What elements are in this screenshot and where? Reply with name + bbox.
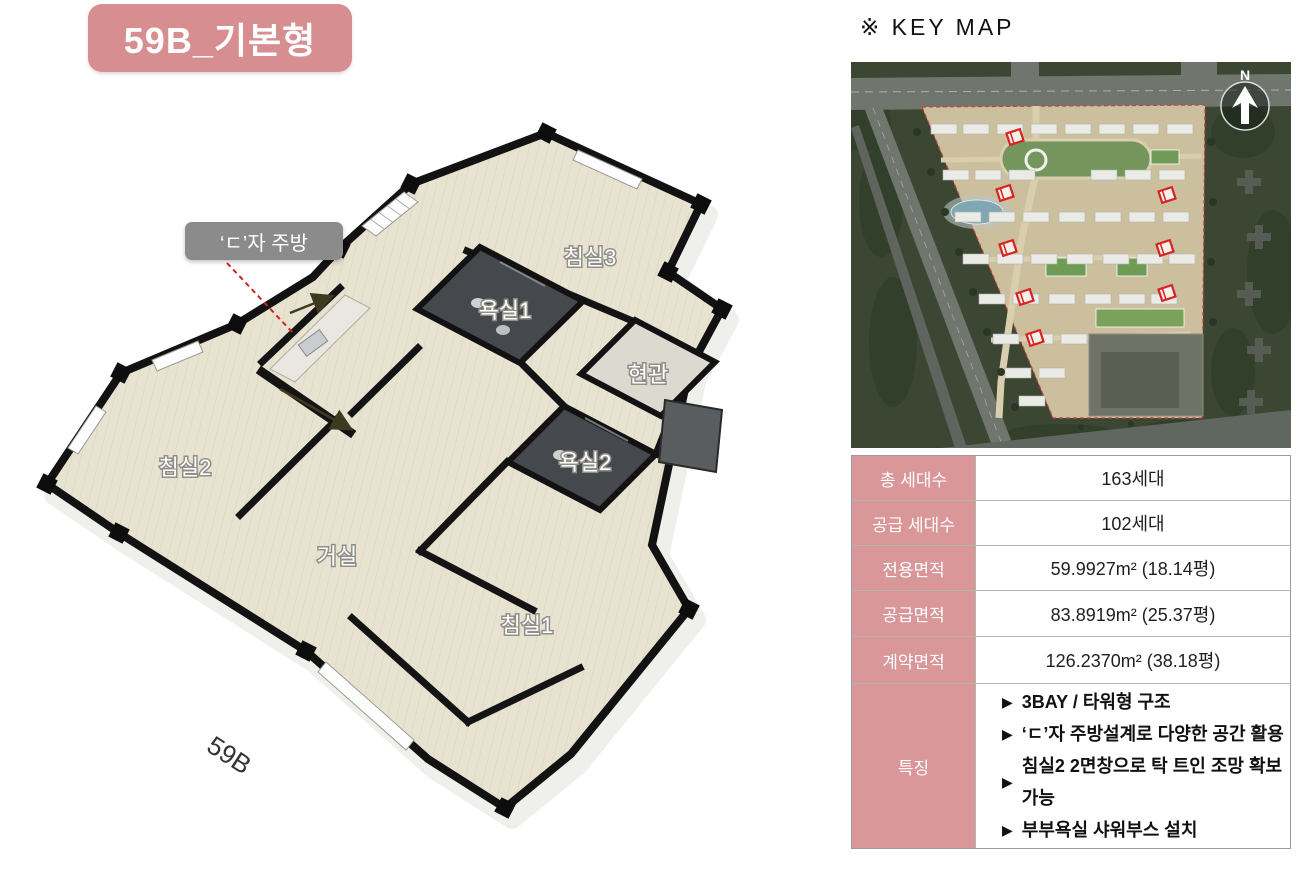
north-label: N: [1240, 67, 1250, 83]
feature-item: ▶ 3BAY / 타워형 구조: [1002, 686, 1171, 718]
spec-value: 126.2370m² (38.18평): [976, 637, 1290, 683]
feature-text: ‘ㄷ’자 주방설계로 다양한 공간 활용: [1022, 718, 1284, 750]
spec-label: 특징: [852, 684, 976, 848]
bullet-icon: ▶: [1002, 814, 1013, 846]
key-map-image: N: [851, 62, 1291, 448]
feature-item: ▶ 침실2 2면창으로 탁 트인 조망 확보 가능: [1002, 750, 1290, 814]
bullet-icon: ▶: [1002, 718, 1013, 750]
feature-text: 3BAY / 타워형 구조: [1022, 686, 1171, 718]
spec-row-supply-area: 공급면적 83.8919m² (25.37평): [852, 591, 1290, 637]
feature-item: ▶ 부부욕실 샤워부스 설치: [1002, 814, 1197, 846]
spec-row-contract-area: 계약면적 126.2370m² (38.18평): [852, 637, 1290, 684]
feature-item: ▶ ‘ㄷ’자 주방설계로 다양한 공간 활용: [1002, 718, 1284, 750]
floor-plan-illustration: 침실2 침실3 욕실1 욕실2 현관 거실 침실1 59B: [0, 0, 820, 880]
room-label-living: 거실: [317, 544, 357, 569]
bullet-icon: ▶: [1002, 766, 1013, 798]
spec-value: 102세대: [976, 501, 1290, 545]
spec-row-exclusive-area: 전용면적 59.9927m² (18.14평): [852, 546, 1290, 591]
spec-label: 총 세대수: [852, 456, 976, 500]
bullet-icon: ▶: [1002, 686, 1013, 718]
unit-type-badge: 59B_기본형: [88, 4, 352, 72]
unit-type-badge-label: 59B_기본형: [124, 12, 316, 64]
spec-label: 공급면적: [852, 591, 976, 636]
spec-row-supplied-units: 공급 세대수 102세대: [852, 501, 1290, 546]
spec-label: 전용면적: [852, 546, 976, 590]
feature-text: 침실2 2면창으로 탁 트인 조망 확보 가능: [1022, 750, 1290, 814]
spec-table: 총 세대수 163세대 공급 세대수 102세대 전용면적 59.9927m² …: [851, 455, 1291, 849]
facility-block: [1089, 334, 1203, 416]
room-label-bathroom2: 욕실2: [559, 450, 612, 475]
kitchen-callout-label: ‘ㄷ’자 주방: [220, 227, 308, 256]
room-label-bedroom1: 침실1: [501, 613, 554, 638]
feature-list: ▶ 3BAY / 타워형 구조 ▶ ‘ㄷ’자 주방설계로 다양한 공간 활용 ▶…: [976, 684, 1290, 848]
room-label-bedroom2: 침실2: [159, 455, 212, 480]
entrance-door: [659, 400, 722, 472]
room-label-bathroom1: 욕실1: [479, 298, 532, 323]
feature-text: 부부욕실 샤워부스 설치: [1022, 814, 1198, 846]
flyer-page: 침실2 침실3 욕실1 욕실2 현관 거실 침실1 59B 59B_기본형 ‘ㄷ…: [0, 0, 1300, 880]
key-map-title: ※ KEY MAP: [860, 14, 1015, 41]
spec-value: 163세대: [976, 456, 1290, 500]
spec-value: 83.8919m² (25.37평): [976, 591, 1290, 636]
spec-value: 59.9927m² (18.14평): [976, 546, 1290, 590]
spec-row-features: 특징 ▶ 3BAY / 타워형 구조 ▶ ‘ㄷ’자 주방설계로 다양한 공간 활…: [852, 684, 1290, 848]
spec-row-total-units: 총 세대수 163세대: [852, 456, 1290, 501]
room-label-entrance: 현관: [628, 362, 668, 387]
room-label-bedroom3: 침실3: [564, 245, 617, 270]
spec-label: 계약면적: [852, 637, 976, 683]
spec-label: 공급 세대수: [852, 501, 976, 545]
unit-code-label: 59B: [202, 730, 257, 780]
kitchen-callout: ‘ㄷ’자 주방: [185, 222, 343, 260]
